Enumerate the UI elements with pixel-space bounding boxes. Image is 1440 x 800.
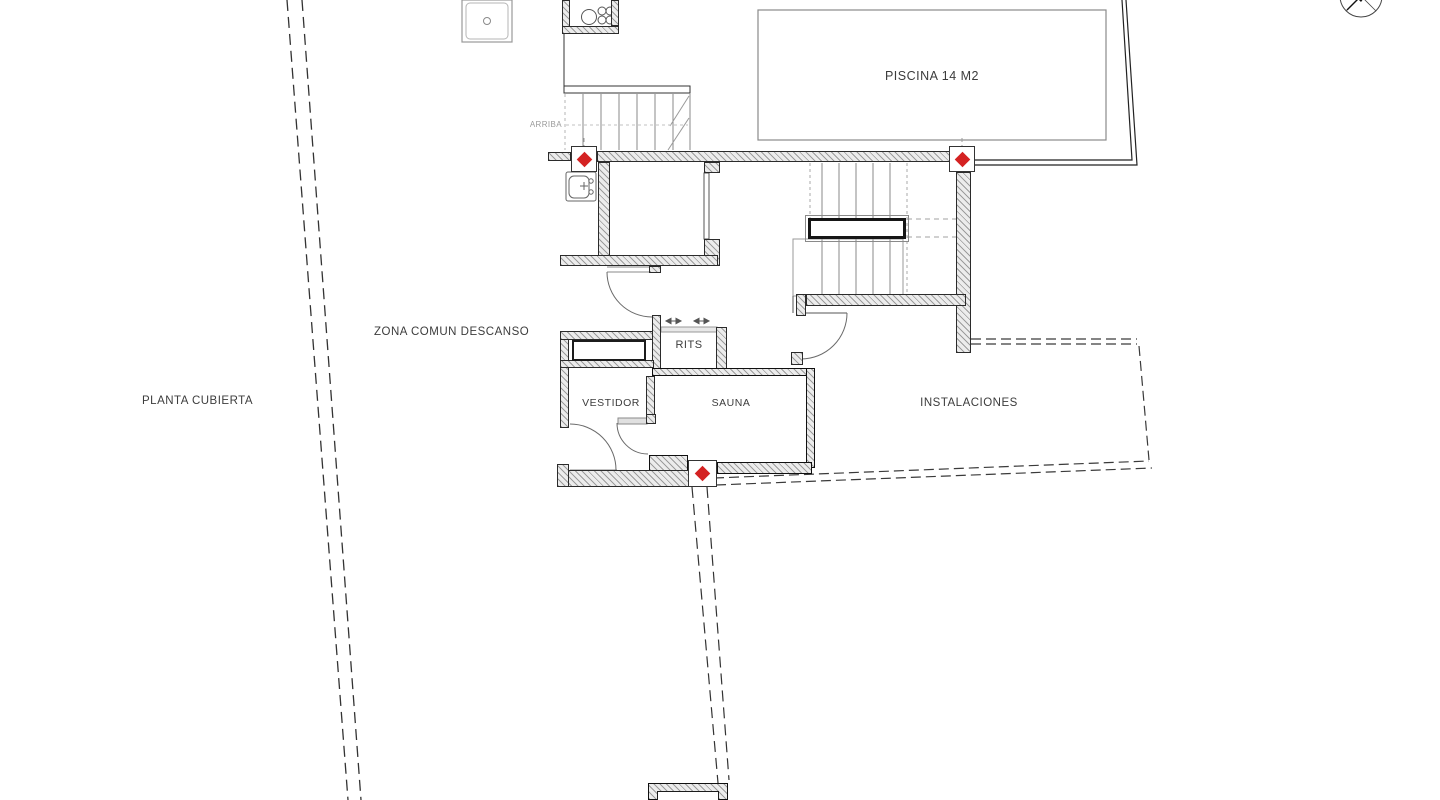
wall xyxy=(557,464,569,487)
wall xyxy=(548,152,571,161)
wall xyxy=(560,331,654,340)
column-marker-icon xyxy=(688,460,717,487)
wall xyxy=(806,294,966,306)
pipes-circles-icon xyxy=(582,7,615,25)
stair-railing xyxy=(808,218,906,239)
wall-sauna xyxy=(717,462,812,474)
stairs-up-label: ARRIBA xyxy=(520,120,562,129)
wall xyxy=(560,255,718,266)
wall xyxy=(557,470,700,487)
wall xyxy=(562,26,619,34)
wall xyxy=(704,162,720,173)
wall xyxy=(560,360,654,368)
marker-diamond xyxy=(695,466,711,482)
wall xyxy=(597,151,952,162)
wall xyxy=(611,0,619,26)
sink-icon xyxy=(566,172,596,201)
marker-diamond xyxy=(954,151,970,167)
pool-label: PISCINA 14 M2 xyxy=(832,69,1032,83)
wall xyxy=(560,331,569,428)
upper-stairs xyxy=(564,34,690,150)
wall xyxy=(796,294,806,316)
site-boundary-left xyxy=(287,0,361,800)
vent-arrows-icon xyxy=(661,318,717,332)
wall-sauna xyxy=(806,368,815,468)
wall xyxy=(646,376,655,416)
wall-sauna xyxy=(649,455,688,471)
wall xyxy=(646,414,656,424)
wall xyxy=(649,266,661,273)
kiosk-interior xyxy=(657,791,719,800)
zone-common-label: ZONA COMUN DESCANSO xyxy=(374,326,529,338)
shower-tray-icon xyxy=(462,0,512,42)
floor-plan-canvas: PLANTA CUBIERTA ZONA COMUN DESCANSO PISC… xyxy=(0,0,1440,800)
rits-label: RITS xyxy=(664,339,714,351)
compass-north-icon xyxy=(1340,0,1382,17)
wall xyxy=(956,172,971,353)
shaft-window xyxy=(704,173,709,239)
wall-sauna xyxy=(652,368,815,376)
instalaciones-label: INSTALACIONES xyxy=(899,397,1039,409)
vestidor-label: VESTIDOR xyxy=(566,397,656,409)
wall xyxy=(791,352,803,365)
column-marker-icon xyxy=(571,146,597,172)
sauna-label: SAUNA xyxy=(686,397,776,409)
lockers-cabinet xyxy=(572,340,646,361)
column-marker-icon xyxy=(949,146,975,172)
footpath-boundary xyxy=(692,487,729,783)
marker-diamond xyxy=(576,151,592,167)
plan-title-label: PLANTA CUBIERTA xyxy=(142,395,253,407)
wall xyxy=(598,162,610,266)
